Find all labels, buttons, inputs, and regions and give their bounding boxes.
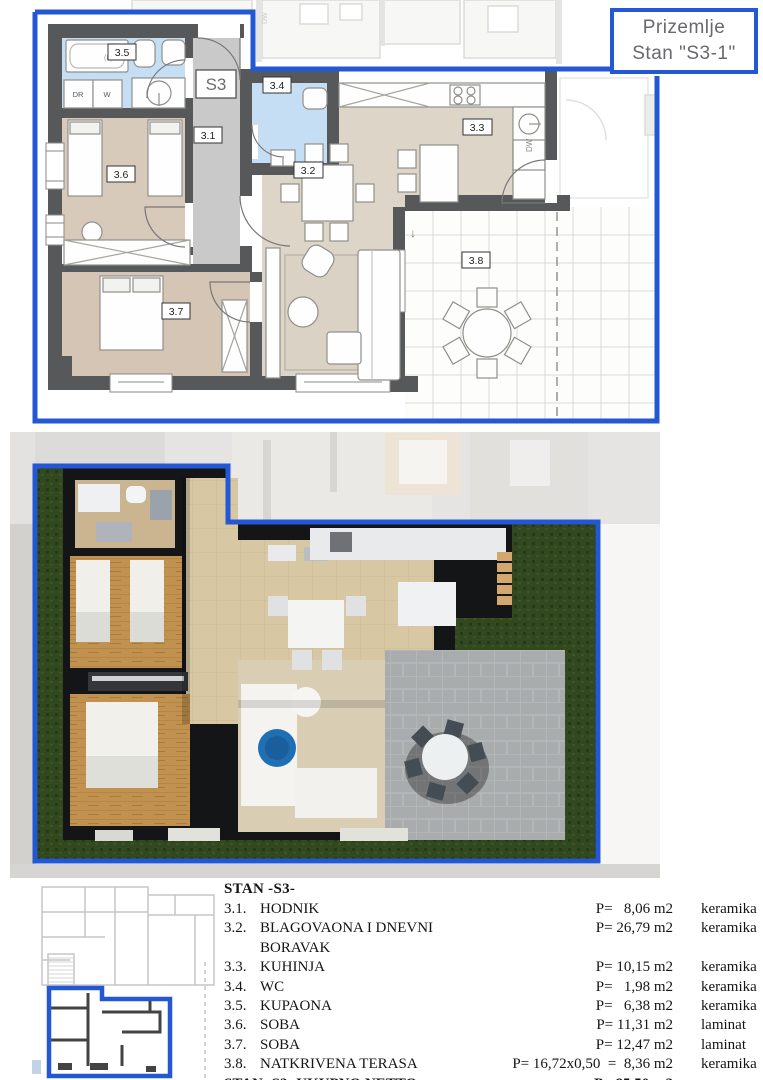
room-name: SOBA <box>260 1036 477 1055</box>
area-table: STAN -S3- 3.1. HODNIK P= 8,06 m2 keramik… <box>224 881 763 1080</box>
room-name: KUHINJA <box>260 958 477 977</box>
table-row: 3.6. SOBA P= 11,31 m2 laminat <box>224 1016 763 1035</box>
title-line-unit: Stan "S3-1" <box>632 41 736 67</box>
svg-text:S3: S3 <box>206 75 227 94</box>
room-material: keramika <box>673 1055 763 1074</box>
table-row: 3.2. BLAGOVAONA I DNEVNI BORAVAK P= 26,7… <box>224 919 763 958</box>
keyplan-marker <box>32 1060 41 1074</box>
room-area: P= 8,06 m2 <box>477 900 673 919</box>
row-number: 3.1. <box>224 900 260 919</box>
svg-text:3.6: 3.6 <box>114 169 129 181</box>
room-material: keramika <box>673 919 763 958</box>
washer-label: W <box>103 90 111 99</box>
table-total-row: STAN -S3- UKUPNO NETTO P= 85,50 m2 <box>224 1075 763 1080</box>
room-area: P= 26,79 m2 <box>477 919 673 958</box>
room-area: P= 10,15 m2 <box>477 958 673 977</box>
unit-label-box: S3 <box>196 70 236 98</box>
row-number: 3.3. <box>224 958 260 977</box>
room-area: P= 1,98 m2 <box>477 978 673 997</box>
room-name: BLAGOVAONA I DNEVNI BORAVAK <box>260 919 477 958</box>
room-area: P= 16,72x0,50 = 8,36 m2 <box>477 1055 673 1074</box>
room-label-3-2: 3.2 <box>294 162 323 178</box>
dryer-label: DR <box>73 90 84 99</box>
svg-text:3.7: 3.7 <box>169 306 184 318</box>
row-number: 3.5. <box>224 997 260 1016</box>
total-area: P= 85,50 m2 <box>477 1075 673 1080</box>
render-3d <box>0 432 763 878</box>
table-row: 3.7. SOBA P= 12,47 m2 laminat <box>224 1036 763 1055</box>
row-number: 3.4. <box>224 978 260 997</box>
room-area: P= 11,31 m2 <box>477 1016 673 1035</box>
room-label-3-8: 3.8 <box>462 252 490 268</box>
building-outline-faint <box>42 887 214 1078</box>
svg-text:3.4: 3.4 <box>270 80 285 92</box>
room-label-3-7: 3.7 <box>162 303 190 319</box>
row-number: 3.6. <box>224 1016 260 1035</box>
plan-title-box: Prizemlje Stan "S3-1" <box>610 8 758 74</box>
table-row: 3.5. KUPAONA P= 6,38 m2 keramika <box>224 997 763 1016</box>
row-number: 3.7. <box>224 1036 260 1055</box>
room-material: keramika <box>673 978 763 997</box>
room-label-3-1: 3.1 <box>194 127 222 143</box>
room-name: WC <box>260 978 477 997</box>
row-number: 3.2. <box>224 919 260 958</box>
room-area: P= 6,38 m2 <box>477 997 673 1016</box>
svg-text:3.1: 3.1 <box>201 130 216 142</box>
row-number: 3.8. <box>224 1055 260 1074</box>
room-material: laminat <box>673 1036 763 1055</box>
room-name: NATKRIVENA TERASA <box>260 1055 477 1074</box>
room-name: KUPAONA <box>260 997 477 1016</box>
table-row: 3.4. WC P= 1,98 m2 keramika <box>224 978 763 997</box>
table-header: STAN -S3- <box>224 881 763 898</box>
room-material: keramika <box>673 997 763 1016</box>
room-material: laminat <box>673 1016 763 1035</box>
unit-walls-dark <box>49 993 160 1066</box>
svg-text:3.2: 3.2 <box>301 165 316 177</box>
total-label: STAN -S3- UKUPNO NETTO <box>224 1075 477 1080</box>
room-label-3-3: 3.3 <box>463 119 492 135</box>
room-label-3-6: 3.6 <box>107 166 135 182</box>
room-area: P= 12,47 m2 <box>477 1036 673 1055</box>
svg-text:3.5: 3.5 <box>115 47 130 59</box>
svg-text:3.3: 3.3 <box>470 122 485 134</box>
room-name: SOBA <box>260 1016 477 1035</box>
svg-text:3.8: 3.8 <box>469 255 484 267</box>
neighbor-dw-label: DW <box>262 12 269 24</box>
room-label-3-5: 3.5 <box>108 44 136 60</box>
floorplan-sheet: DW <box>0 0 763 1080</box>
unit-walls-dark-fill <box>58 1063 156 1072</box>
table-row: 3.1. HODNIK P= 8,06 m2 keramika <box>224 900 763 919</box>
table-row: 3.3. KUHINJA P= 10,15 m2 keramika <box>224 958 763 977</box>
room-material: keramika <box>673 958 763 977</box>
title-line-floor: Prizemlje <box>643 15 726 41</box>
room-material: keramika <box>673 900 763 919</box>
room-name: HODNIK <box>260 900 477 919</box>
terrace-arrow: ↓ <box>410 226 416 240</box>
dw-label: DW <box>525 138 534 152</box>
table-row: 3.8. NATKRIVENA TERASA P= 16,72x0,50 = 8… <box>224 1055 763 1074</box>
room-label-3-4: 3.4 <box>263 77 291 93</box>
